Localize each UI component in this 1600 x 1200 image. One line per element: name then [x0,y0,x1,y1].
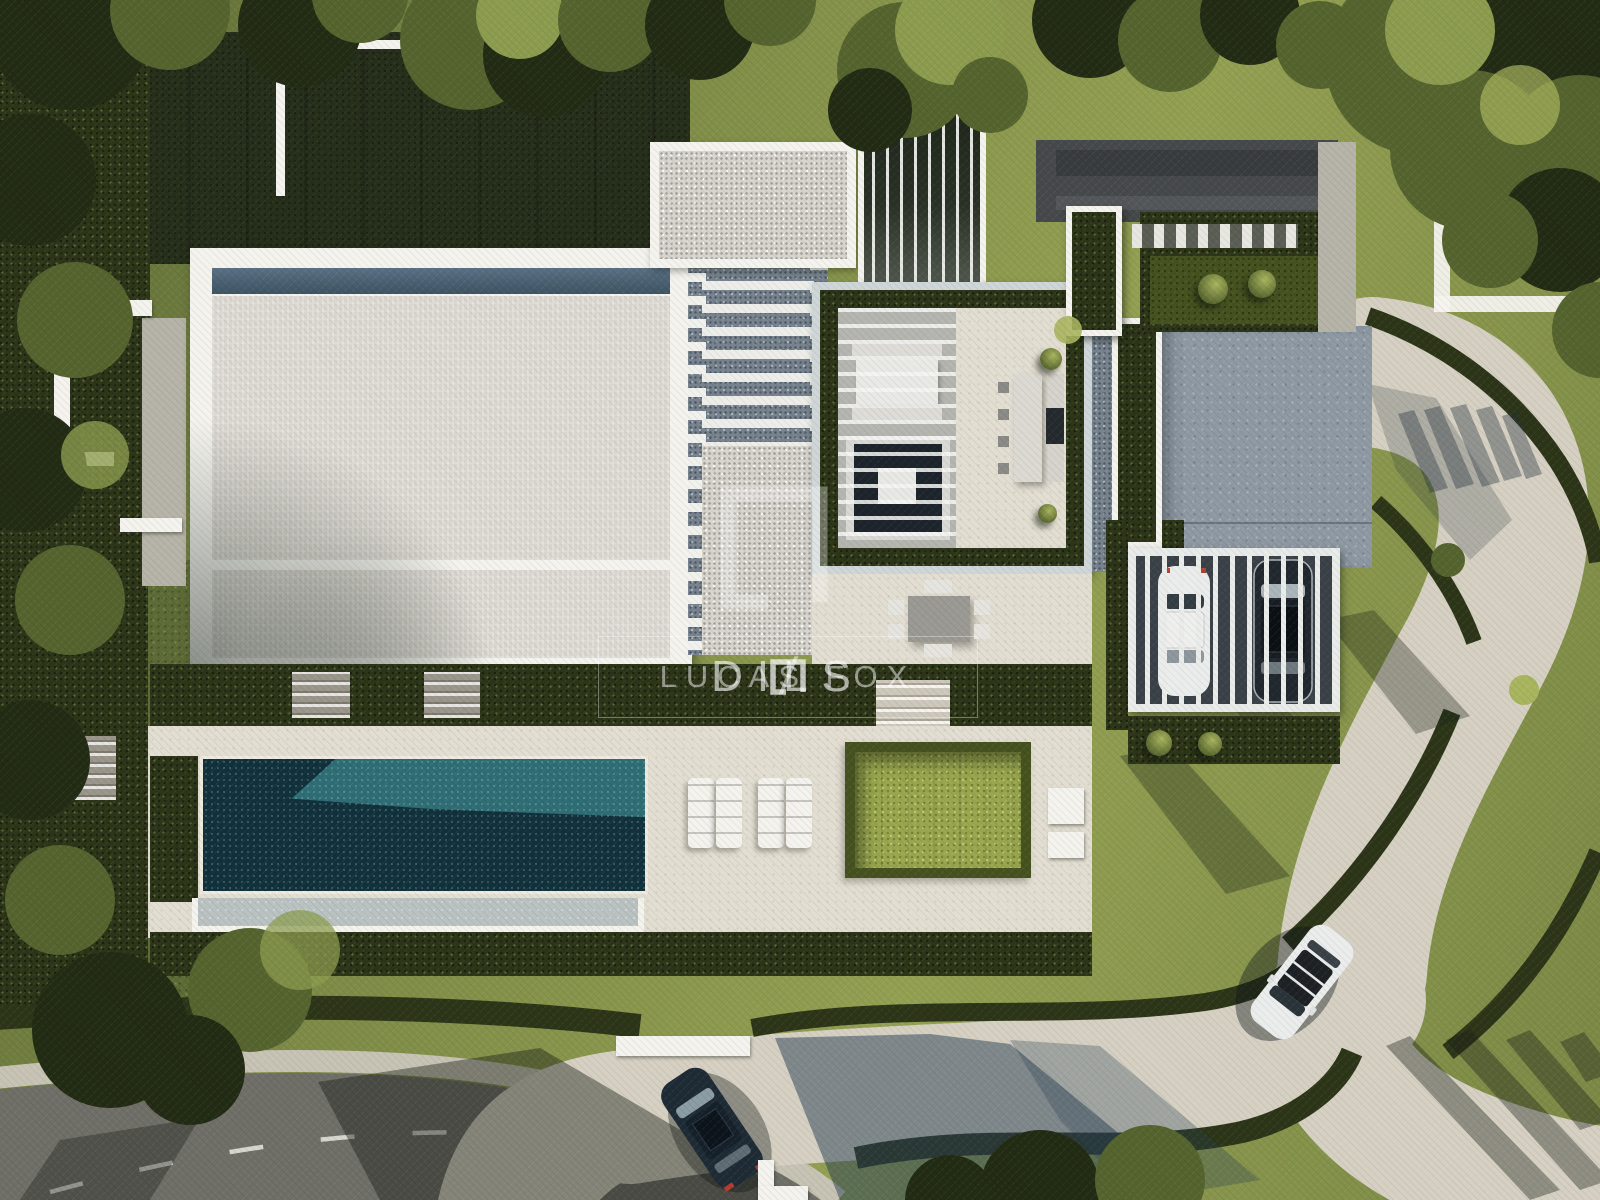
driveway-hedge-outer [1448,852,1598,1052]
entry-paving-band [1056,150,1332,176]
sun-lounger [758,778,784,848]
wall-stub [54,316,70,456]
garden-steps-left [72,736,116,800]
slat-screen [858,102,986,288]
dark-cabinet [1046,408,1064,444]
entry-planter-hedge [1072,212,1116,330]
stool [998,463,1009,474]
road-hedge [0,1008,640,1026]
forecourt [1162,326,1372,568]
swimming-pool [200,756,648,894]
pergola-over-room [838,308,956,548]
pool-sparkle [203,759,645,891]
chair [924,580,952,593]
sun-lounger [716,778,742,848]
stool [998,436,1009,447]
watermark: DILS / LUCAS FOX [598,636,978,718]
secondary-roof-gravel [659,151,847,259]
kitchen-island [1014,374,1042,482]
carport-hedge-bottom [1128,716,1340,764]
courtyard [812,282,1092,574]
hedge-band-lower [150,932,1092,976]
shrub-planter [1150,256,1320,324]
covered-lounge-room [838,308,956,548]
planter-hedge [1118,324,1156,542]
watermark-brand-secondary: LUCAS FOX [660,659,917,695]
sun-lounger [688,778,714,848]
shrub [1198,732,1222,756]
shrub [1146,730,1172,756]
carport-slats [1128,548,1340,712]
watermark-bracket-large [720,486,828,610]
entry-planter [1066,206,1122,336]
expansion-joint [1162,522,1372,524]
pool-deck [148,726,1092,938]
wall-stub [120,518,182,532]
tree-shadow-on-roof [190,248,692,668]
carport-hedge-left [1106,520,1128,730]
shrub [1248,270,1276,298]
wall-stub [54,300,152,316]
wall-stub [54,452,114,466]
garden-path [142,318,186,586]
entrance-wall [758,1186,808,1200]
outdoor-kitchen [1048,832,1084,858]
stepping-stones [1132,224,1298,248]
bracket-shape [728,494,820,602]
main-house-roof [190,248,692,668]
pergola-slats [702,258,814,470]
slat-screen-bars [858,102,986,288]
aerial-villa-render: DILS / LUCAS FOX [0,0,1600,1200]
stool [998,382,1009,393]
screen-frame [980,102,986,288]
hedge-planter [1112,318,1162,548]
stool [998,409,1009,420]
screen-frame [858,102,864,288]
steps [424,672,480,718]
secondary-roof [650,142,856,268]
garden-wall-l [1434,296,1566,312]
carport [1128,548,1340,712]
shrub [1198,274,1228,304]
open-patio [956,308,1066,548]
chair [974,600,990,615]
patio-plant [1038,504,1057,523]
entrance-wall [616,1036,750,1056]
sun-lounger [786,778,812,848]
patio-plant [1040,348,1062,370]
steps [292,672,350,718]
chair [888,600,904,615]
pool-shallow-ledge [192,898,644,932]
garden-wall-l [1434,150,1450,312]
entry-side-path [1318,142,1356,332]
deck-hedge-left [150,756,198,902]
outdoor-kitchen [1048,788,1084,824]
lawn-square [845,742,1031,878]
